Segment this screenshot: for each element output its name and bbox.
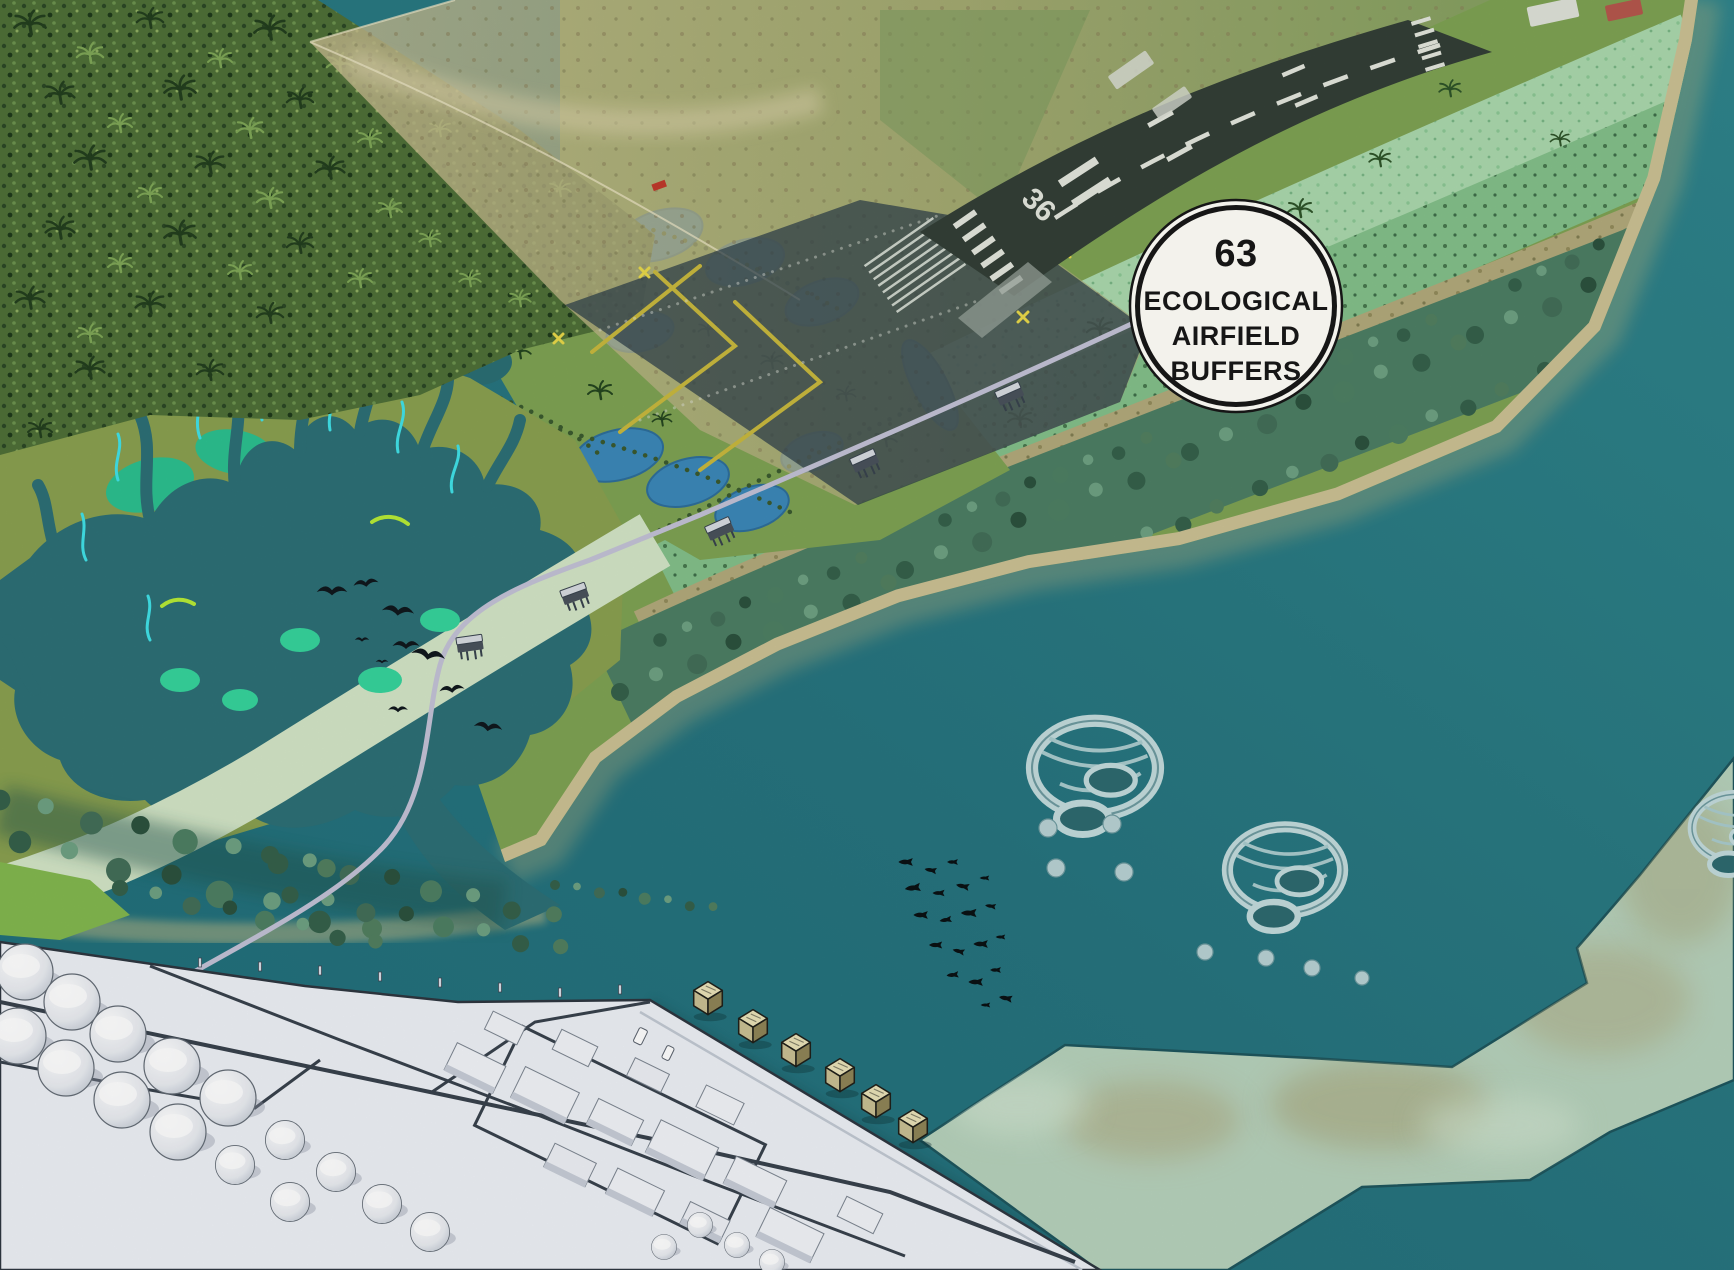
badge-line-1: ECOLOGICAL — [1144, 286, 1329, 316]
badge-line-2: AIRFIELD — [1172, 321, 1301, 351]
paper-grain — [0, 0, 1734, 1270]
badge-line-3: BUFFERS — [1171, 356, 1302, 386]
badge-number: 63 — [1214, 233, 1257, 275]
ecological-airfield-buffers-badge: 63 ECOLOGICAL AIRFIELD BUFFERS — [1130, 200, 1342, 412]
masterplan-map: 36 — [0, 0, 1734, 1270]
masterplan-illustration: 36 — [0, 0, 1734, 1270]
